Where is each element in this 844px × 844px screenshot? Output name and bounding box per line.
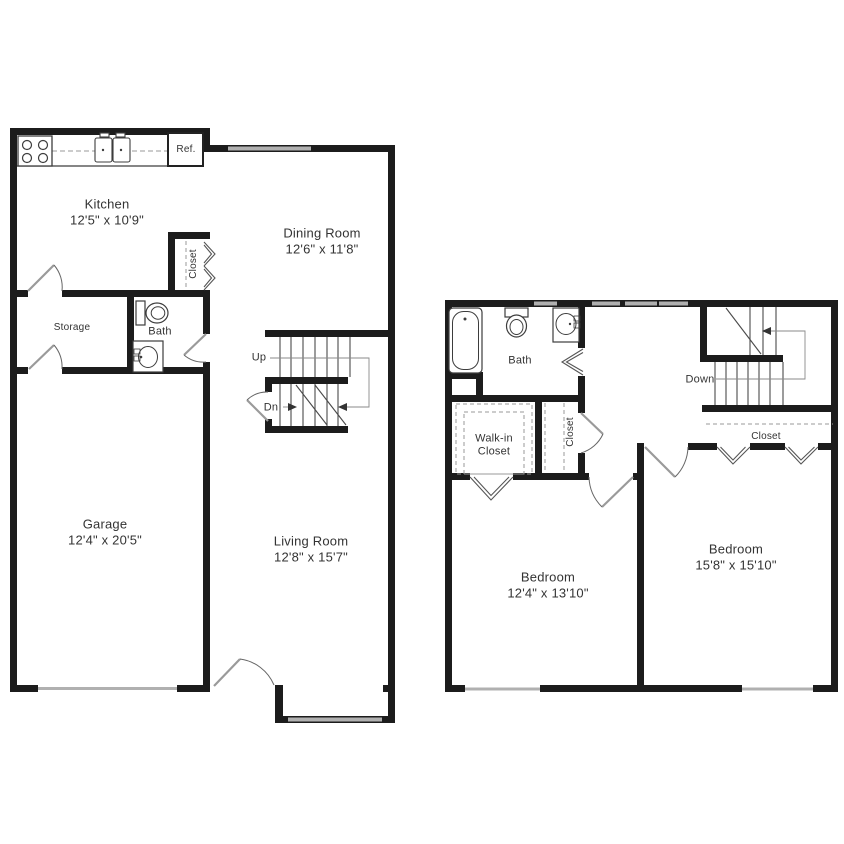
stairs-up-arrow (338, 403, 347, 411)
dining-room-dimensions: 12'6" x 11'8" (286, 243, 359, 256)
bedroom-closet-label: Closet (751, 432, 781, 442)
bath-sink-icon-floor2 (553, 308, 580, 342)
stove-icon (18, 136, 52, 166)
floor2-plan (445, 300, 838, 692)
walk-in-closet-label-line1: Walk-in (475, 434, 513, 445)
bedroom-left-label: Bedroom (521, 571, 575, 584)
walk-in-closet-label-line2: Closet (478, 447, 510, 458)
bath-label-floor2: Bath (508, 356, 531, 367)
living-room-label: Living Room (274, 535, 348, 548)
hall-closet-label: Closet (566, 417, 576, 447)
bedroom-right-dimensions: 15'8" x 15'10" (695, 559, 776, 572)
toilet-icon (136, 301, 168, 325)
garage-label: Garage (83, 518, 128, 531)
kitchen-fixtures (17, 133, 203, 166)
bifold-door-icon (204, 242, 215, 290)
refrigerator-label: Ref. (176, 145, 195, 155)
floor1-walls (10, 128, 395, 723)
bedroom-double-door-icon (470, 477, 513, 500)
bath2-door-icon (562, 349, 583, 375)
storage-label: Storage (54, 323, 90, 333)
dining-window (228, 147, 311, 151)
floorplan-svg (0, 0, 844, 844)
bath-label-floor1: Bath (148, 327, 171, 338)
bedroom-left-dimensions: 12'4" x 13'10" (507, 587, 588, 600)
stairs-dn-arrow (288, 403, 297, 411)
stairs-down-label: Down (686, 375, 715, 386)
living-room-dimensions: 12'8" x 15'7" (274, 551, 348, 564)
stairs-up-label: Up (252, 353, 266, 364)
floor1-plan (10, 128, 395, 723)
dining-room-label: Dining Room (283, 227, 360, 240)
bedroom-right-label: Bedroom (709, 543, 763, 556)
closet-label-floor1: Closet (189, 249, 199, 279)
kitchen-sink-icon (95, 133, 130, 162)
floor2-walls (445, 300, 838, 692)
toilet-icon-floor2 (505, 308, 528, 337)
patio-slider-door (288, 718, 382, 722)
garage-dimensions: 12'4" x 20'5" (68, 534, 142, 547)
kitchen-dimensions: 12'5" x 10'9" (70, 214, 144, 227)
bathtub-icon (449, 308, 482, 373)
stairs-dn-label: Dn (264, 403, 278, 414)
garage-door (38, 687, 177, 690)
kitchen-label: Kitchen (85, 198, 130, 211)
floorplan-image: Kitchen 12'5" x 10'9" Dining Room 12'6" … (0, 0, 844, 844)
bath-sink-icon (133, 341, 163, 372)
